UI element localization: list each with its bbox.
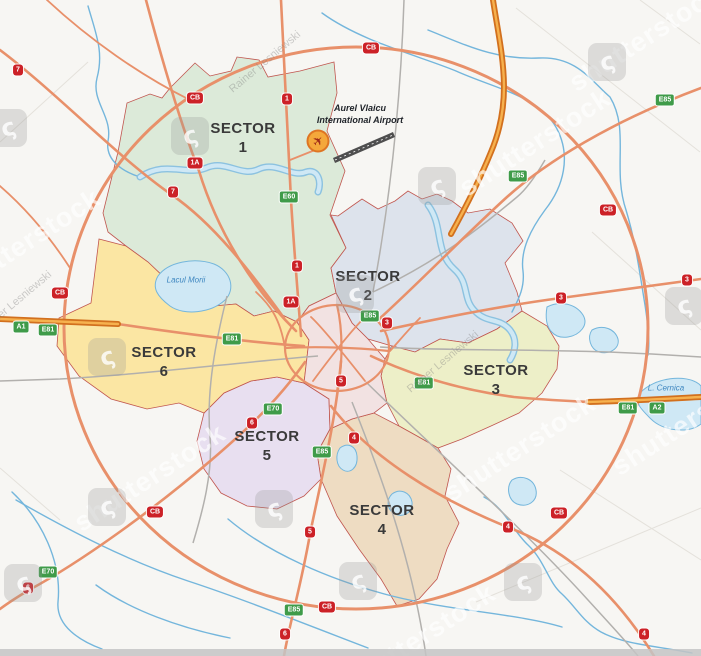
sector-number: 1	[210, 138, 275, 157]
airport-name-label: Aurel VlaicuInternational Airport	[317, 103, 403, 126]
road-badge-red-5: 5	[336, 376, 346, 387]
road-badge-red-CB: CB	[52, 288, 68, 299]
road-badge-red-7: 7	[168, 187, 178, 198]
road-badge-red-CB: CB	[187, 93, 203, 104]
sector-number: 5	[234, 446, 299, 465]
road-badge-green-E85: E85	[285, 605, 303, 616]
shutterstock-logo-icon: ς	[673, 290, 695, 321]
airport-name-line1: Aurel Vlaicu	[317, 103, 403, 115]
road-badge-green-E85: E85	[313, 447, 331, 458]
road-badge-red-6: 6	[23, 583, 33, 594]
shutterstock-logo-icon: ς	[179, 120, 201, 151]
sector-label-5: SECTOR5	[234, 427, 299, 465]
sector-number: 6	[131, 362, 196, 381]
shutterstock-watermark: shutterstock	[69, 418, 232, 539]
shutterstock-logo-tile: ς	[665, 287, 701, 325]
shutterstock-watermark: shutterstock	[339, 578, 502, 656]
road-badge-green-E81: E81	[223, 334, 241, 345]
road-badge-red-6: 6	[280, 629, 290, 640]
road-badge-red-1A: 1A	[188, 158, 203, 169]
road-badge-red-4: 4	[503, 522, 513, 533]
shutterstock-logo-icon: ς	[96, 341, 118, 372]
shutterstock-logo-tile: ς	[0, 109, 27, 147]
sector-word: SECTOR	[335, 267, 400, 286]
road-badge-green-E81: E81	[415, 378, 433, 389]
sector-label-6: SECTOR6	[131, 343, 196, 381]
shutterstock-logo-tile: ς	[88, 488, 126, 526]
shutterstock-watermark: shutterstock	[0, 183, 106, 304]
shutterstock-logo-icon: ς	[263, 493, 285, 524]
sector-label-2: SECTOR2	[335, 267, 400, 305]
author-watermark: Rainer Lesniewski	[227, 29, 303, 96]
road-badge-green-E81: E81	[619, 403, 637, 414]
road-badge-red-1: 1	[282, 94, 292, 105]
shutterstock-watermark: shutterstock	[454, 83, 617, 204]
road-badge-green-E70: E70	[39, 567, 57, 578]
shutterstock-logo-tile: ς	[255, 490, 293, 528]
shutterstock-logo-tile: ς	[88, 338, 126, 376]
road-badge-red-3: 3	[382, 318, 392, 329]
sector-word: SECTOR	[210, 119, 275, 138]
bucharest-sector-map: ✈ 7CBCB11A711A333CBCBCBCBCB55666444E60E8…	[0, 0, 701, 656]
road-badge-green-E85: E85	[656, 95, 674, 106]
road-badge-red-CB: CB	[600, 205, 616, 216]
sector-word: SECTOR	[234, 427, 299, 446]
shutterstock-logo-tile: ς	[504, 563, 542, 601]
road-badge-red-5: 5	[305, 527, 315, 538]
road-badge-green-E85: E85	[509, 171, 527, 182]
shutterstock-watermark: shutterstock	[439, 388, 602, 509]
water-label-1: L. Cernica	[648, 384, 684, 393]
shutterstock-watermark: shutterstock	[564, 0, 701, 98]
shutterstock-logo-tile: ς	[588, 43, 626, 81]
sector-label-4: SECTOR4	[349, 501, 414, 539]
shutterstock-logo-icon: ς	[96, 491, 118, 522]
sector-word: SECTOR	[463, 361, 528, 380]
sector-number: 4	[349, 520, 414, 539]
road-badge-green-E60: E60	[280, 192, 298, 203]
sector-number: 2	[335, 286, 400, 305]
sector-label-3: SECTOR3	[463, 361, 528, 399]
shutterstock-logo-icon: ς	[426, 170, 448, 201]
road-badge-red-7: 7	[13, 65, 23, 76]
road-badge-red-4: 4	[349, 433, 359, 444]
photo-edge-strip	[0, 649, 701, 656]
road-badge-red-4: 4	[639, 629, 649, 640]
shutterstock-logo-icon: ς	[512, 566, 534, 597]
road-badge-red-3: 3	[556, 293, 566, 304]
shutterstock-logo-tile: ς	[171, 117, 209, 155]
road-badge-green-E85: E85	[361, 311, 379, 322]
shutterstock-watermark: shutterstock	[607, 362, 701, 483]
water-label-0: Lacul Morii	[167, 276, 206, 285]
sector-label-1: SECTOR1	[210, 119, 275, 157]
road-badge-red-1: 1	[292, 261, 302, 272]
road-badge-red-CB: CB	[147, 507, 163, 518]
sector-word: SECTOR	[349, 501, 414, 520]
road-badge-green-A2: A2	[650, 403, 665, 414]
road-badge-red-CB: CB	[319, 602, 335, 613]
road-badge-green-E81: E81	[39, 325, 57, 336]
sector-number: 3	[463, 380, 528, 399]
road-badge-green-E70: E70	[264, 404, 282, 415]
road-badge-red-CB: CB	[363, 43, 379, 54]
label-overlay: 7CBCB11A711A333CBCBCBCBCB55666444E60E85E…	[0, 0, 701, 656]
airport-name-line2: International Airport	[317, 115, 403, 127]
road-badge-red-CB: CB	[551, 508, 567, 519]
road-badge-red-1A: 1A	[284, 297, 299, 308]
road-badge-red-3: 3	[682, 275, 692, 286]
shutterstock-logo-tile: ς	[339, 562, 377, 600]
shutterstock-logo-tile: ς	[418, 167, 456, 205]
shutterstock-logo-icon: ς	[0, 112, 19, 143]
road-badge-green-A1: A1	[14, 322, 29, 333]
shutterstock-logo-icon: ς	[347, 565, 369, 596]
sector-word: SECTOR	[131, 343, 196, 362]
shutterstock-logo-icon: ς	[596, 46, 618, 77]
